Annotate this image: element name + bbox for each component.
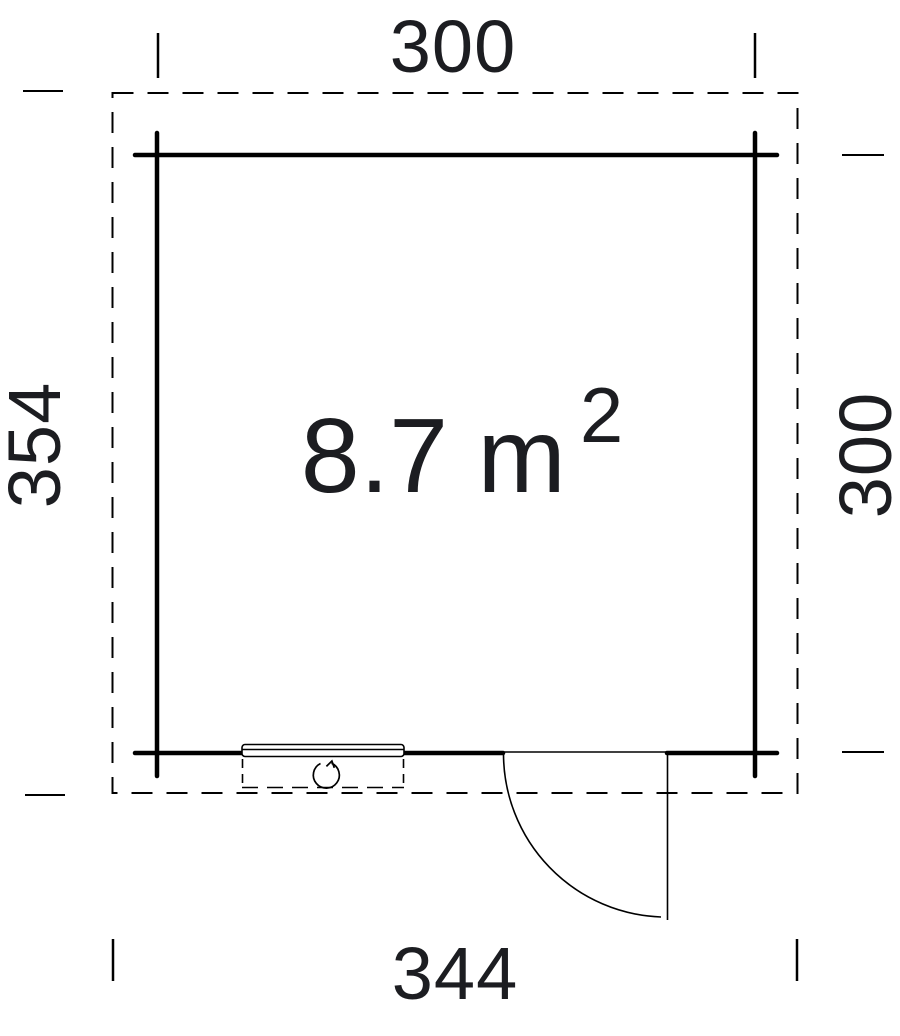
floor-plan-drawing: [0, 0, 900, 1036]
door-symbol: [503, 752, 668, 920]
area-value: 8.7 m: [301, 397, 566, 515]
dimension-label-left: 354: [0, 305, 72, 585]
area-superscript: 2: [580, 376, 623, 454]
window-symbol: [242, 745, 404, 789]
dimension-label-right: 300: [829, 315, 900, 595]
window-rotation-arrowhead-icon: [326, 761, 334, 768]
window-frame: [242, 745, 404, 757]
dimension-label-bottom: 344: [355, 937, 555, 1011]
door-swing-arc: [504, 754, 662, 917]
window-rotation-arrow-icon: [313, 763, 339, 788]
dimension-label-top: 300: [353, 10, 553, 84]
floor-plan-stage: 300 344 354 300 8.7 m2: [0, 0, 900, 1036]
area-label: 8.7 m2: [262, 403, 662, 509]
